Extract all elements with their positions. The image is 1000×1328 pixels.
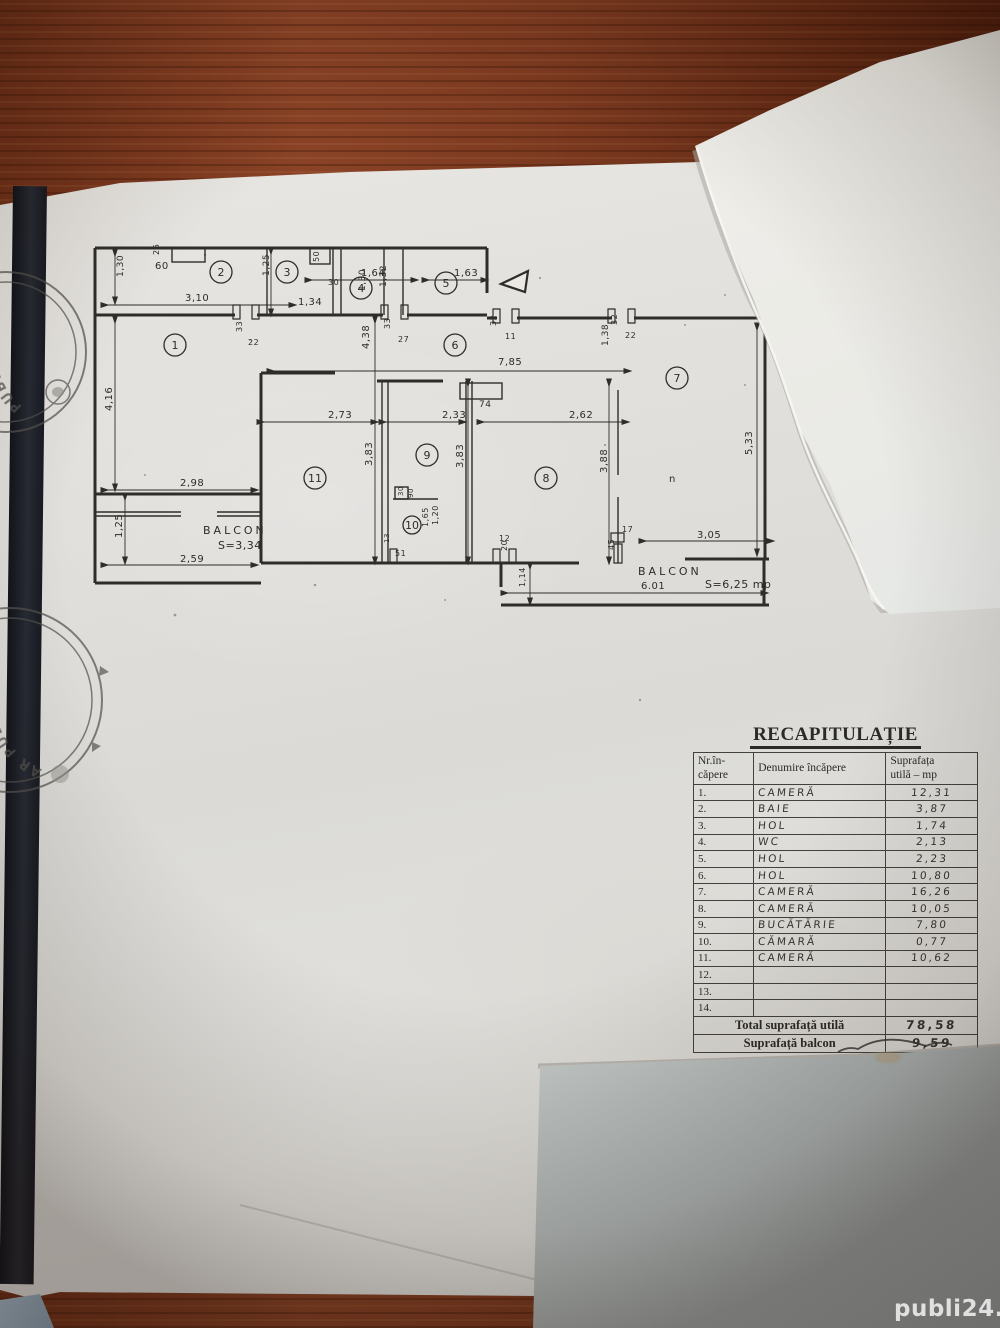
photo-floor-plan-document: PUBLI AR PUBLI	[0, 0, 1000, 1328]
torn-edge-fibers	[697, 148, 884, 609]
torn-edge-highlight-overlay	[0, 0, 1000, 1328]
watermark: publi24.ro	[894, 1296, 1000, 1322]
